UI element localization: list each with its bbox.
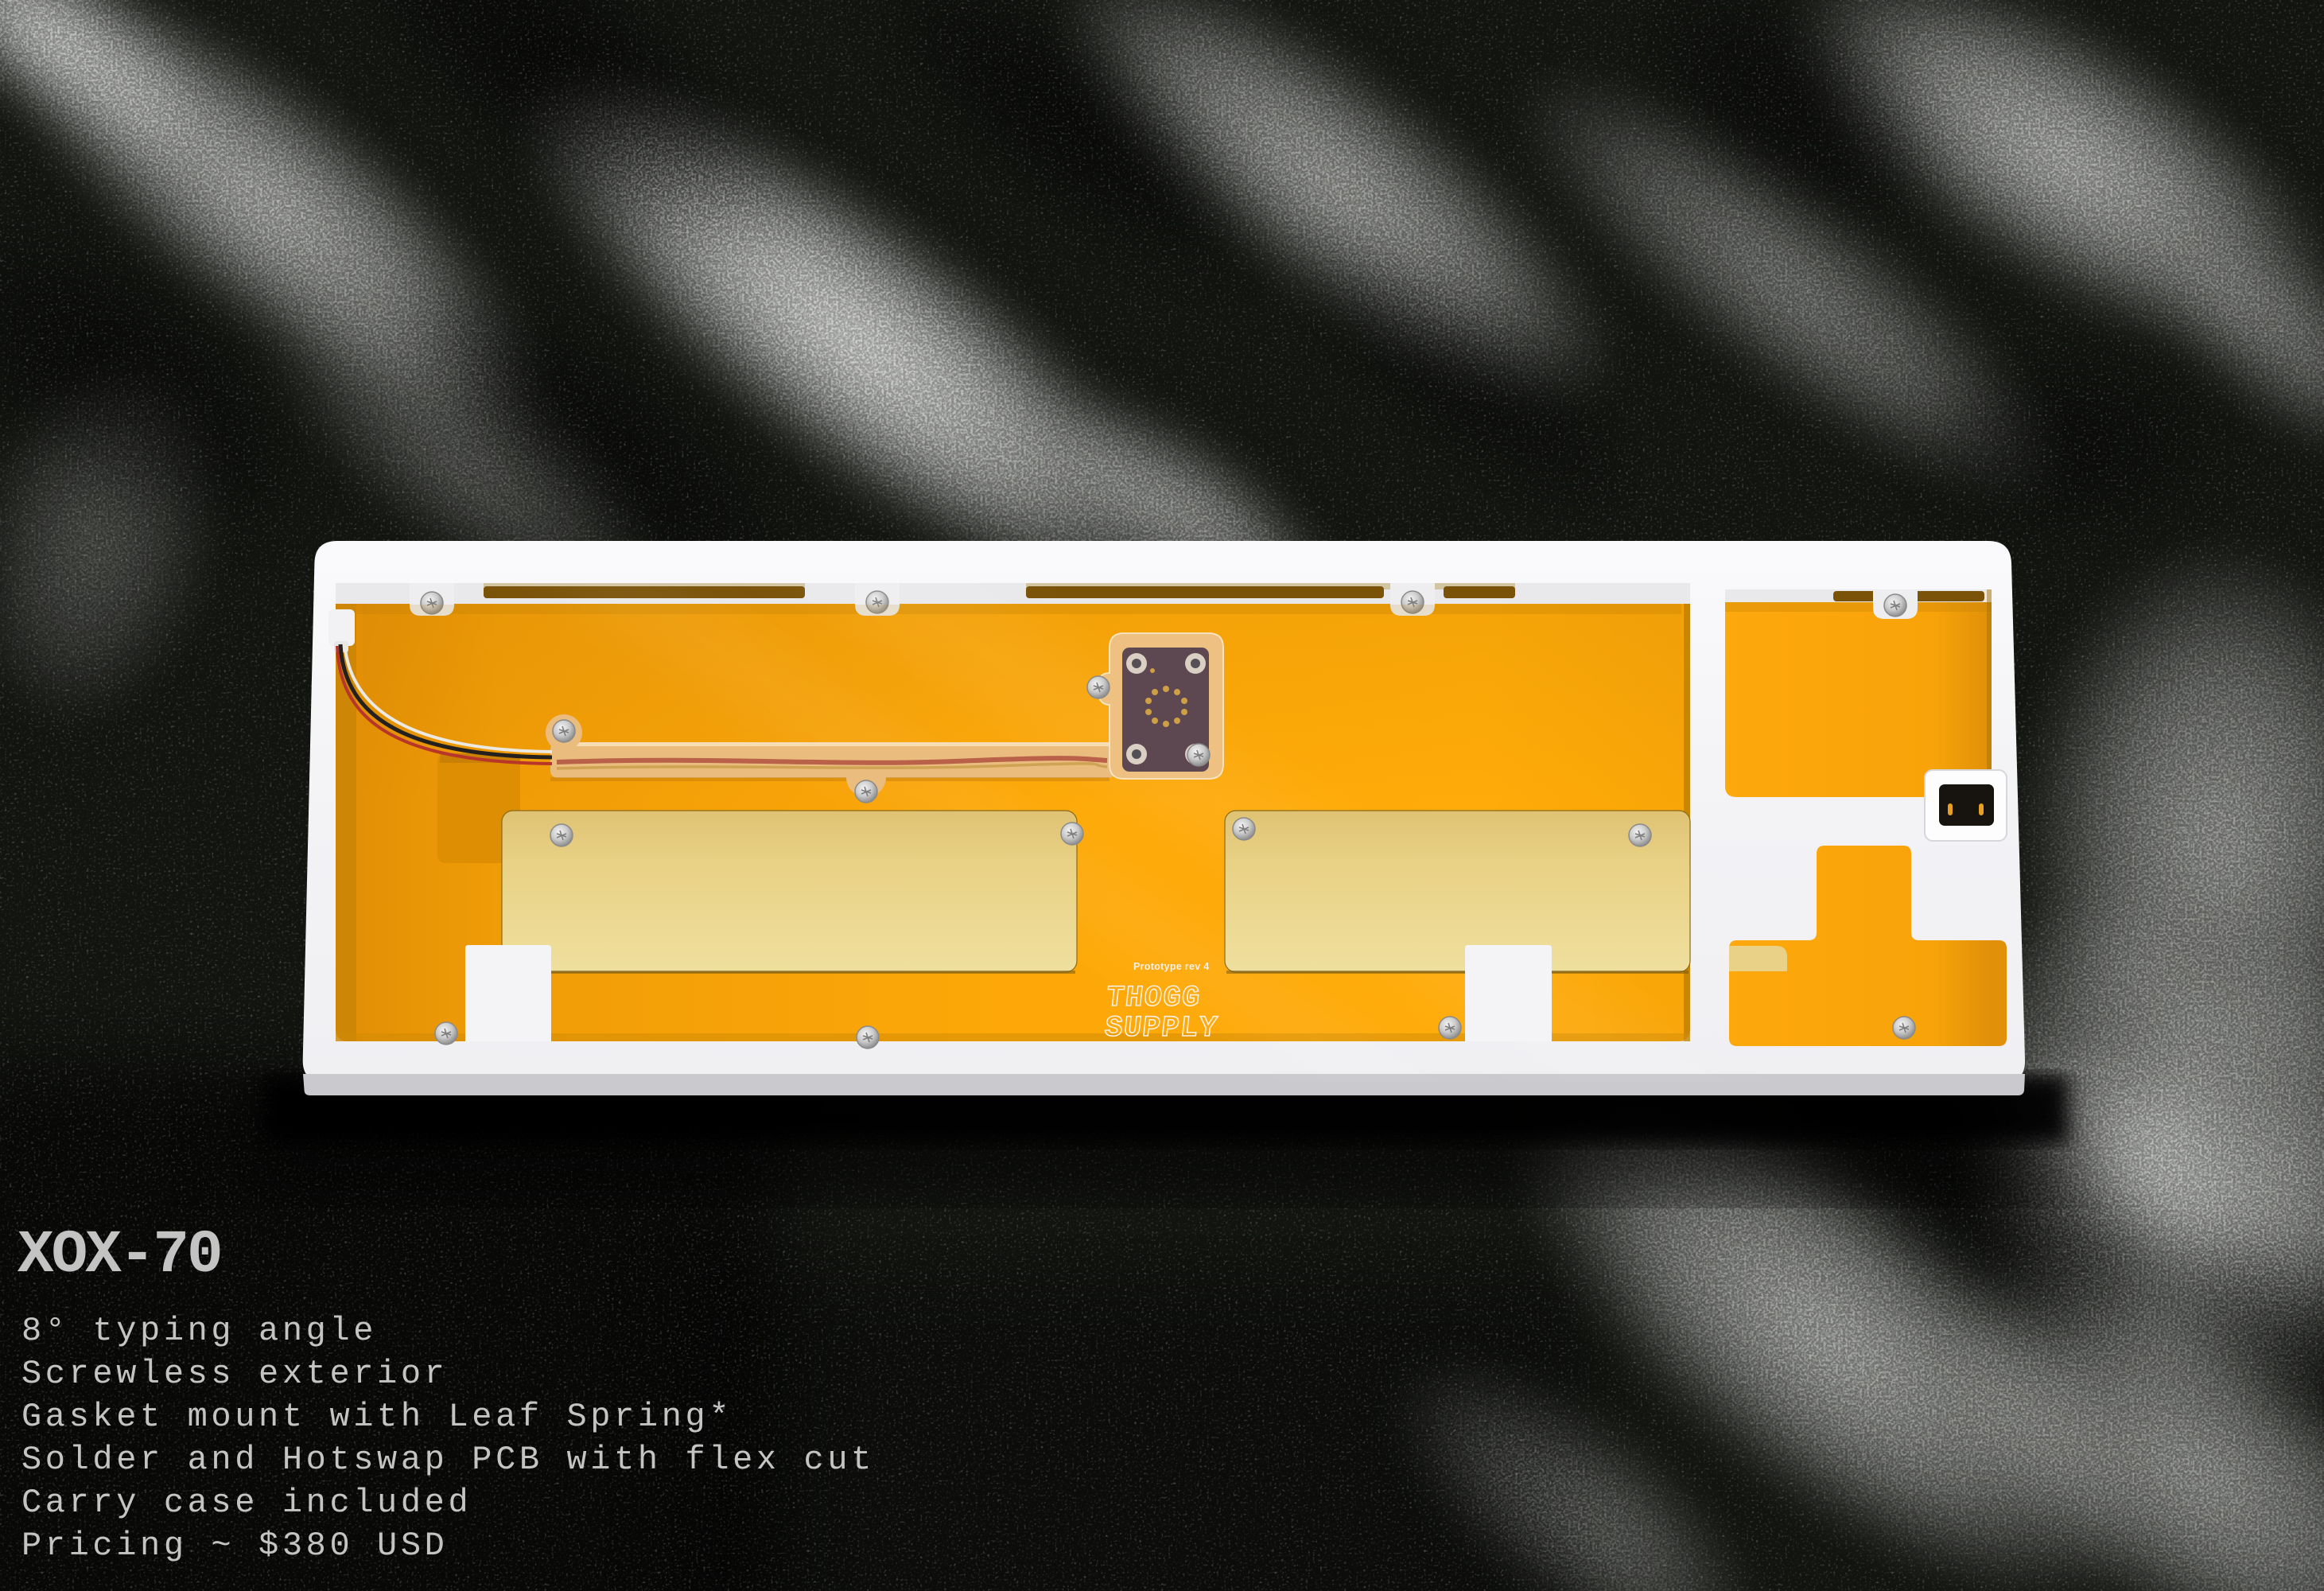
svg-text:THOGG: THOGG bbox=[1105, 982, 1203, 1015]
svg-text:Solder and Hotswap PCB with fl: Solder and Hotswap PCB with flex cut bbox=[21, 1441, 875, 1479]
svg-text:Carry case included: Carry case included bbox=[21, 1484, 472, 1522]
svg-text:Gasket mount with Leaf Spring*: Gasket mount with Leaf Spring* bbox=[21, 1398, 733, 1436]
svg-text:Screwless exterior: Screwless exterior bbox=[21, 1355, 448, 1393]
svg-text:8° typing angle: 8° typing angle bbox=[21, 1312, 377, 1350]
svg-text:XOX-70: XOX-70 bbox=[17, 1221, 221, 1290]
svg-text:SUPPLY: SUPPLY bbox=[1103, 1012, 1220, 1045]
svg-text:Prototype rev 4: Prototype rev 4 bbox=[1133, 961, 1210, 972]
svg-text:Pricing ~ $380 USD: Pricing ~ $380 USD bbox=[21, 1527, 448, 1565]
